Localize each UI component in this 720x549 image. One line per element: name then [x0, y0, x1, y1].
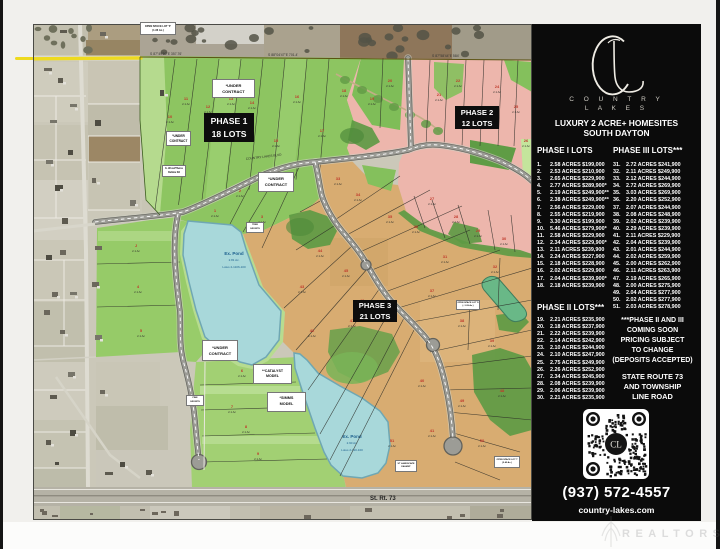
svg-text:CL: CL [610, 440, 622, 450]
